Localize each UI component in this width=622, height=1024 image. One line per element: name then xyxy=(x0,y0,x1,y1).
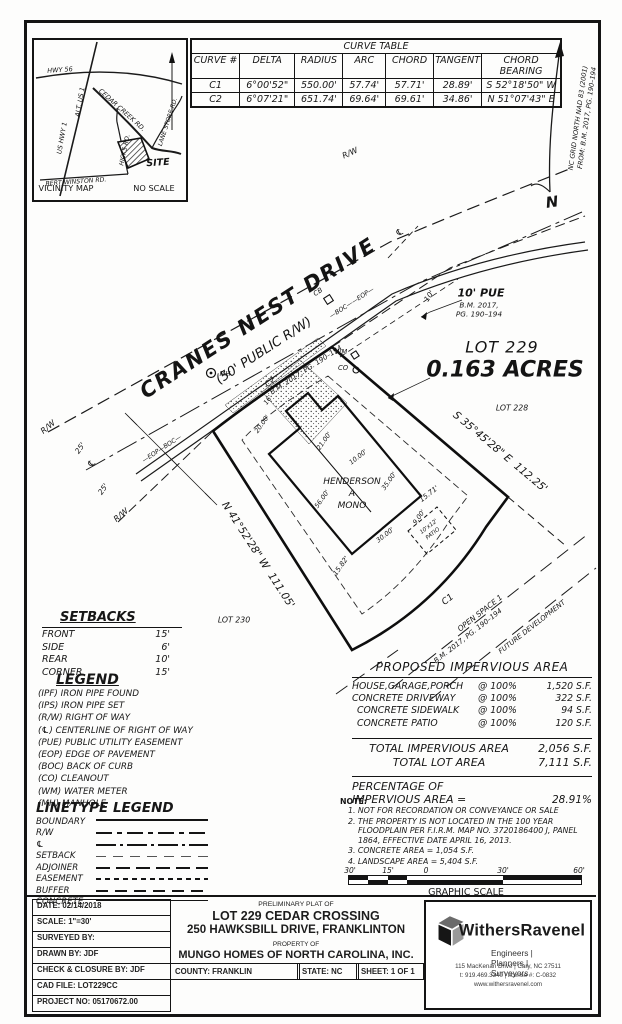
legend-wm: (WM) WATER METER xyxy=(38,786,218,798)
col-curve: CURVE # xyxy=(192,54,239,78)
legend-panel: LEGEND (IPF) IRON PIPE FOUND (IPS) IRON … xyxy=(38,672,218,810)
legend-rw: (R/W) RIGHT OF WAY xyxy=(38,712,218,724)
graphic-scale: 30' 15' 0 30' 60' GRAPHIC SCALE xyxy=(348,866,584,898)
setbacks-title: SETBACKS xyxy=(42,610,192,625)
impervious-title: PROPOSED IMPERVIOUS AREA xyxy=(352,660,592,674)
curve-table-header-row: CURVE # DELTA RADIUS ARC CHORD TANGENT C… xyxy=(192,53,560,78)
vicinity-title: VICINITY MAP xyxy=(39,183,94,193)
lot-number: LOT 229 xyxy=(465,338,538,357)
col-chord-bearing: CHORD BEARING xyxy=(481,54,560,78)
firm-block: WithersRavenel Engineers | Planners | Su… xyxy=(424,900,592,1010)
scale-bar xyxy=(348,875,582,885)
firm-address: 115 MacKenan Drive | Cary, NC 27511 xyxy=(455,963,561,970)
house-name-line1: HENDERSON xyxy=(323,477,381,487)
house-name-line2: A xyxy=(349,489,355,499)
note-3: 3. CONCRETE AREA = 1,054 S.F. xyxy=(348,846,596,856)
pue-label: 10' PUE xyxy=(457,287,504,300)
note-1: 1. NOT FOR RECORDATION OR CONVEYANCE OR … xyxy=(348,806,596,816)
curve-row-c1: C1 6°00'52" 550.00' 57.74' 57.71' 28.89'… xyxy=(192,78,560,92)
legend-ips: (IPS) IRON PIPE SET xyxy=(38,700,218,712)
legend-eop: (EOP) EDGE OF PAVEMENT xyxy=(38,749,218,761)
co-label: CO xyxy=(338,364,348,372)
vicinity-no-scale: NO SCALE xyxy=(133,183,174,193)
scale-ticks: 30' 15' 0 30' 60' xyxy=(348,866,584,875)
col-radius: RADIUS xyxy=(294,54,342,78)
legend-title: LEGEND xyxy=(38,672,218,688)
tb-sheet: SHEET: 1 OF 1 xyxy=(356,963,424,980)
linetype-setback: SETBACK xyxy=(36,851,208,863)
legend-boc: (BOC) BACK OF CURB xyxy=(38,761,218,773)
tb-scale: SCALE: 1"=30' xyxy=(32,915,171,932)
tb-plat-title: LOT 229 CEDAR CROSSING xyxy=(212,909,379,923)
tb-cad-file: CAD FILE: LOT229CC xyxy=(32,979,171,996)
tb-plat-address: 250 HAWKSBILL DRIVE, FRANKLINTON xyxy=(187,924,405,936)
col-arc: ARC xyxy=(342,54,385,78)
setback-rear: REAR10' xyxy=(42,654,170,667)
pue-ref1: B.M. 2017, xyxy=(459,301,498,310)
setback-front: FRONT15' xyxy=(42,629,170,642)
legend-centerline: (℄) CENTERLINE OF RIGHT OF WAY xyxy=(38,725,218,737)
legend-pue: (PUE) PUBLIC UTILITY EASEMENT xyxy=(38,737,218,749)
legend-co: (CO) CLEANOUT xyxy=(38,773,218,785)
impervious-driveway: CONCRETE DRIVEWAY@ 100%322 S.F. xyxy=(352,693,592,705)
curve-row-c2: C2 6°07'21" 651.74' 69.64' 69.61' 34.86'… xyxy=(192,92,560,106)
water-meter-symbol xyxy=(351,351,359,359)
house-name-line3: MONO xyxy=(338,501,367,511)
impervious-panel: PROPOSED IMPERVIOUS AREA HOUSE,GARAGE,PO… xyxy=(352,660,592,806)
catch-basin-symbol xyxy=(324,295,334,305)
setbacks-panel: SETBACKS FRONT15' SIDE6' REAR10' CORNER1… xyxy=(42,610,192,679)
tb-state: STATE: NC xyxy=(297,963,359,980)
linetype-legend-panel: LINETYPE LEGEND BOUNDARY R/W ℄ SETBACK A… xyxy=(36,800,208,908)
wm-label: WM xyxy=(335,348,348,356)
north-letter: N xyxy=(545,192,560,212)
tb-preliminary: PRELIMINARY PLAT OF xyxy=(258,901,333,908)
notes-panel: NOTE: 1. NOT FOR RECORDATION OR CONVEYAN… xyxy=(340,797,596,868)
total-impervious-row: TOTAL IMPERVIOUS AREA2,056 S.F. xyxy=(352,742,592,756)
impervious-sidewalk: CONCRETE SIDEWALK@ 100%94 S.F. xyxy=(352,705,592,717)
linetype-boundary: BOUNDARY xyxy=(36,816,208,828)
curve-table-title-row: CURVE TABLE xyxy=(192,40,560,53)
linetype-centerline: ℄ xyxy=(36,839,208,851)
boundary-extension xyxy=(508,497,566,546)
adjoiner-lot230: LOT 230 xyxy=(218,616,250,625)
lot-area: 0.163 ACRES xyxy=(426,358,584,383)
pue-ref2: PG. 190–194 xyxy=(456,310,502,319)
tb-surveyed-by: SURVEYED BY: xyxy=(32,931,171,948)
firm-name: WithersRavenel xyxy=(459,922,585,941)
legend-ipf: (IPF) IRON PIPE FOUND xyxy=(38,688,218,700)
col-tangent: TANGENT xyxy=(433,54,481,78)
total-lot-row: TOTAL LOT AREA7,111 S.F. xyxy=(352,756,592,770)
firm-website: www.withersravenel.com xyxy=(474,981,542,988)
col-delta: DELTA xyxy=(239,54,294,78)
tb-date: DATE: 02/14/2018 xyxy=(32,899,171,916)
curve-table: CURVE TABLE CURVE # DELTA RADIUS ARC CHO… xyxy=(190,38,562,108)
titleblock-divider xyxy=(26,895,596,897)
notes-title: NOTE: xyxy=(340,797,596,806)
tb-project-no: PROJECT NO: 05170672.00 xyxy=(32,995,171,1012)
plat-sheet: HWY 56 ALT. US 1 US HWY 1 CEDAR CREEK RD… xyxy=(0,0,622,1024)
linetype-rw: R/W xyxy=(36,828,208,840)
setback-side: SIDE6' xyxy=(42,642,170,655)
adjoiner-lot228: LOT 228 xyxy=(496,404,528,413)
tb-check-closure: CHECK & CLOSURE BY: JDF xyxy=(32,963,171,980)
col-chord: CHORD xyxy=(385,54,433,78)
firm-phone: t: 919.469.3340 | license #: C-0832 xyxy=(460,972,556,979)
linetype-legend-title: LINETYPE LEGEND xyxy=(36,800,208,816)
tb-drawn-by: DRAWN BY: JDF xyxy=(32,947,171,964)
linetype-easement: EASEMENT xyxy=(36,874,208,886)
mh-label: MH xyxy=(220,370,231,378)
curve-table-title: CURVE TABLE xyxy=(192,40,560,53)
tb-county: COUNTY: FRANKLIN xyxy=(170,963,300,980)
linetype-adjoiner: ADJOINER xyxy=(36,862,208,874)
impervious-patio: CONCRETE PATIO@ 100%120 S.F. xyxy=(352,718,592,730)
note-2: 2. THE PROPERTY IS NOT LOCATED IN THE 10… xyxy=(348,817,596,846)
tb-property-of: PROPERTY OF xyxy=(273,941,319,948)
impervious-house: HOUSE,GARAGE,PORCH@ 100%1,520 S.F. xyxy=(352,681,592,693)
vicinity-site-label: SITE xyxy=(146,157,170,170)
tb-owner: MUNGO HOMES OF NORTH CAROLINA, INC. xyxy=(178,949,413,961)
